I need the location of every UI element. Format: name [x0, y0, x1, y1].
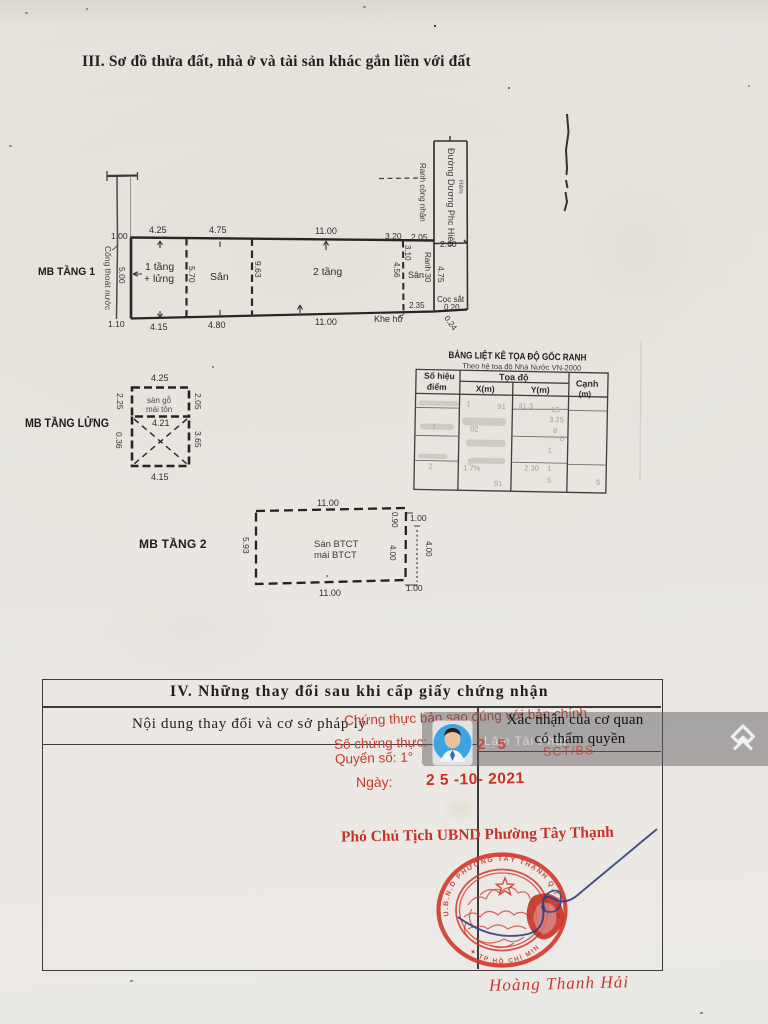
svg-text:3.25: 3.25 — [549, 415, 564, 424]
svg-text:Sân: Sân — [408, 270, 424, 280]
svg-text:MB TẦNG LỬNG: MB TẦNG LỬNG — [25, 417, 109, 430]
svg-text:11.00: 11.00 — [319, 588, 341, 598]
svg-text:4.75: 4.75 — [209, 225, 227, 235]
svg-text:5.70: 5.70 — [187, 266, 197, 283]
svg-text:11.00: 11.00 — [315, 317, 337, 327]
svg-text:4.00: 4.00 — [388, 545, 397, 561]
svg-text:1: 1 — [466, 399, 470, 408]
svg-text:Ranh 30: Ranh 30 — [423, 252, 432, 283]
svg-text:1: 1 — [547, 464, 551, 473]
svg-text:5.00: 5.00 — [117, 267, 127, 284]
svg-text:1.7%: 1.7% — [463, 463, 481, 472]
svg-text:0.24: 0.24 — [442, 314, 459, 332]
svg-text:2.60: 2.60 — [440, 239, 457, 249]
svg-text:Ranh công nhận: Ranh công nhận — [418, 163, 427, 222]
svg-text:2.05: 2.05 — [411, 232, 428, 242]
svg-text:0.36: 0.36 — [114, 432, 124, 449]
svg-text:Cạnh: Cạnh — [576, 378, 599, 388]
svg-text:1.00: 1.00 — [406, 583, 423, 593]
svg-text:2.25: 2.25 — [115, 393, 125, 410]
svg-text:điểm: điểm — [427, 382, 447, 392]
svg-text:91: 91 — [497, 402, 506, 411]
svg-text:4.75: 4.75 — [436, 266, 446, 283]
svg-text:Đường Dương Phc Hiên: Đường Dương Phc Hiên — [446, 148, 456, 246]
svg-text:5: 5 — [596, 478, 600, 487]
svg-text:2.35: 2.35 — [409, 301, 425, 310]
svg-text:41 3: 41 3 — [518, 401, 533, 410]
svg-text:mái BTCT: mái BTCT — [314, 550, 357, 561]
svg-text:+ lửng: + lửng — [144, 273, 174, 285]
svg-text:4.80: 4.80 — [208, 320, 226, 330]
svg-text:Khe hở: Khe hở — [374, 314, 404, 324]
svg-text:Sân: Sân — [210, 271, 229, 283]
svg-text:2 tầng: 2 tầng — [313, 266, 342, 278]
svg-text:sàn gỗ: sàn gỗ — [147, 396, 172, 405]
svg-text:8: 8 — [553, 426, 557, 435]
svg-text:91: 91 — [494, 479, 503, 488]
svg-text:(m): (m) — [579, 390, 592, 399]
svg-text:5: 5 — [547, 476, 551, 485]
svg-text:1: 1 — [548, 446, 552, 455]
svg-text:02: 02 — [470, 424, 479, 433]
svg-text:11.00: 11.00 — [317, 498, 339, 508]
svg-text:0.90: 0.90 — [390, 512, 399, 528]
svg-text:4.00: 4.00 — [424, 541, 433, 557]
svg-text:0.20: 0.20 — [444, 303, 460, 312]
svg-text:0: 0 — [560, 434, 564, 443]
svg-text:Cống thoát nước: Cống thoát nước — [103, 246, 113, 311]
svg-text:1.00: 1.00 — [410, 513, 427, 523]
svg-text:1.00: 1.00 — [111, 231, 128, 241]
svg-text:4.21: 4.21 — [152, 418, 170, 428]
svg-text:4.15: 4.15 — [151, 472, 169, 482]
svg-text:4.15: 4.15 — [150, 322, 168, 332]
svg-text:11.00: 11.00 — [315, 226, 337, 236]
svg-text:1 tầng: 1 tầng — [145, 261, 174, 273]
svg-text:4.25: 4.25 — [151, 373, 169, 383]
svg-text:2.30: 2.30 — [524, 463, 539, 472]
svg-text:Sàn BTCT: Sàn BTCT — [314, 539, 359, 550]
svg-text:Tọa độ: Tọa độ — [499, 372, 529, 383]
svg-text:Hẻm: Hẻm — [457, 180, 464, 194]
svg-text:3.20: 3.20 — [385, 231, 402, 241]
svg-text:2.05: 2.05 — [193, 393, 203, 410]
svg-text:X(m): X(m) — [476, 384, 495, 394]
svg-text:2: 2 — [428, 462, 432, 471]
svg-text:3.65: 3.65 — [193, 431, 203, 448]
svg-text:Y(m): Y(m) — [531, 385, 550, 395]
svg-text:5.93: 5.93 — [241, 537, 251, 554]
svg-text:4.25: 4.25 — [149, 225, 167, 235]
svg-text:Số hiệu: Số hiệu — [424, 371, 455, 382]
svg-text:MB TẦNG 1: MB TẦNG 1 — [38, 265, 95, 278]
svg-text:mái tôn: mái tôn — [146, 405, 172, 414]
svg-text:3.10: 3.10 — [403, 245, 412, 261]
svg-text:9.63: 9.63 — [253, 261, 263, 278]
svg-text:1.10: 1.10 — [108, 319, 125, 329]
svg-text:MB TẦNG 2: MB TẦNG 2 — [139, 536, 207, 551]
svg-text:4.56: 4.56 — [392, 262, 401, 278]
svg-text:15: 15 — [551, 405, 560, 414]
